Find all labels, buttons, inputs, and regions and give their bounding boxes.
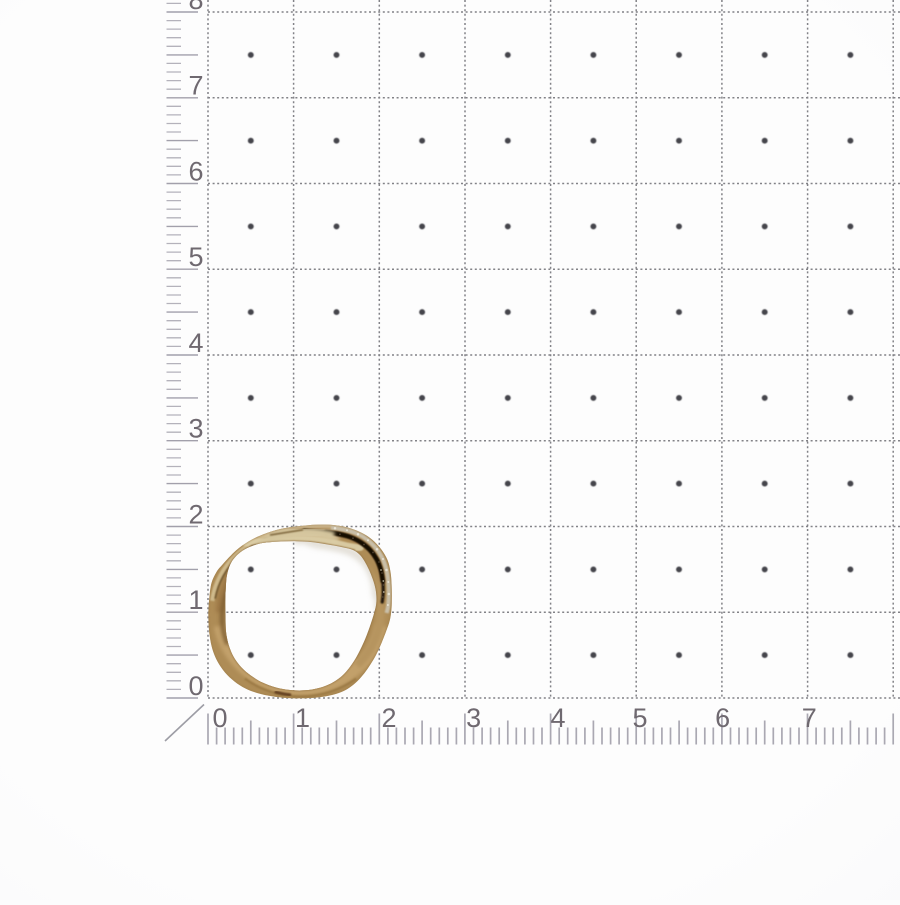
svg-text:4: 4: [188, 328, 203, 358]
svg-text:6: 6: [188, 156, 203, 186]
svg-text:5: 5: [188, 242, 203, 272]
svg-text:3: 3: [466, 703, 481, 733]
svg-text:3: 3: [188, 414, 203, 444]
svg-text:7: 7: [802, 703, 817, 733]
svg-text:8: 8: [188, 0, 203, 15]
svg-text:0: 0: [212, 703, 227, 733]
svg-text:0: 0: [188, 671, 203, 701]
svg-text:7: 7: [188, 71, 203, 101]
svg-text:1: 1: [295, 703, 310, 733]
svg-text:5: 5: [632, 703, 647, 733]
svg-text:4: 4: [550, 703, 565, 733]
svg-text:2: 2: [381, 703, 396, 733]
svg-text:1: 1: [188, 585, 203, 615]
svg-text:2: 2: [188, 499, 203, 529]
svg-text:6: 6: [715, 703, 730, 733]
